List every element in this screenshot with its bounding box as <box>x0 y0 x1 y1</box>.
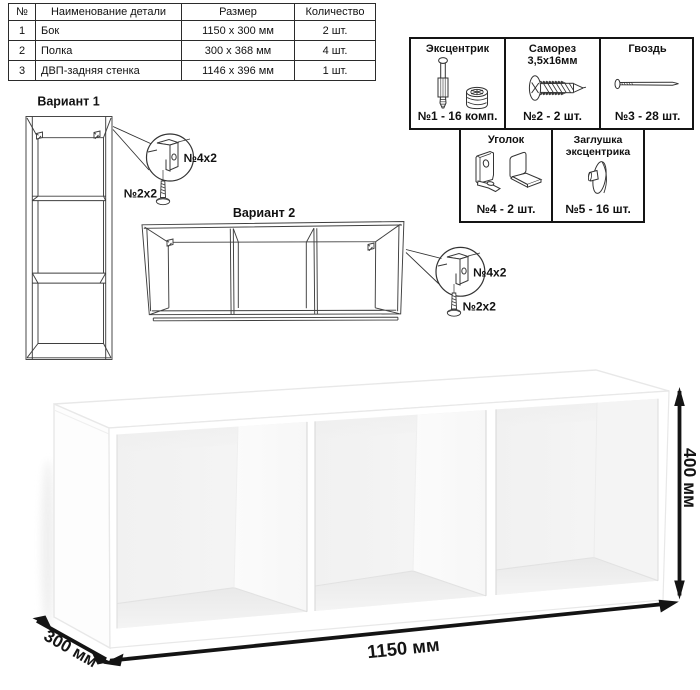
svg-text:№4х2: №4х2 <box>473 266 507 280</box>
svg-text:1150 мм: 1150 мм <box>366 634 440 662</box>
svg-text:№2х2: №2х2 <box>124 187 158 201</box>
svg-text:Вариант 1: Вариант 1 <box>37 95 99 109</box>
svg-text:400 мм: 400 мм <box>680 448 700 508</box>
svg-text:Вариант 2: Вариант 2 <box>233 206 295 220</box>
svg-text:№2х2: №2х2 <box>463 300 497 314</box>
svg-text:№4х2: №4х2 <box>184 151 218 165</box>
